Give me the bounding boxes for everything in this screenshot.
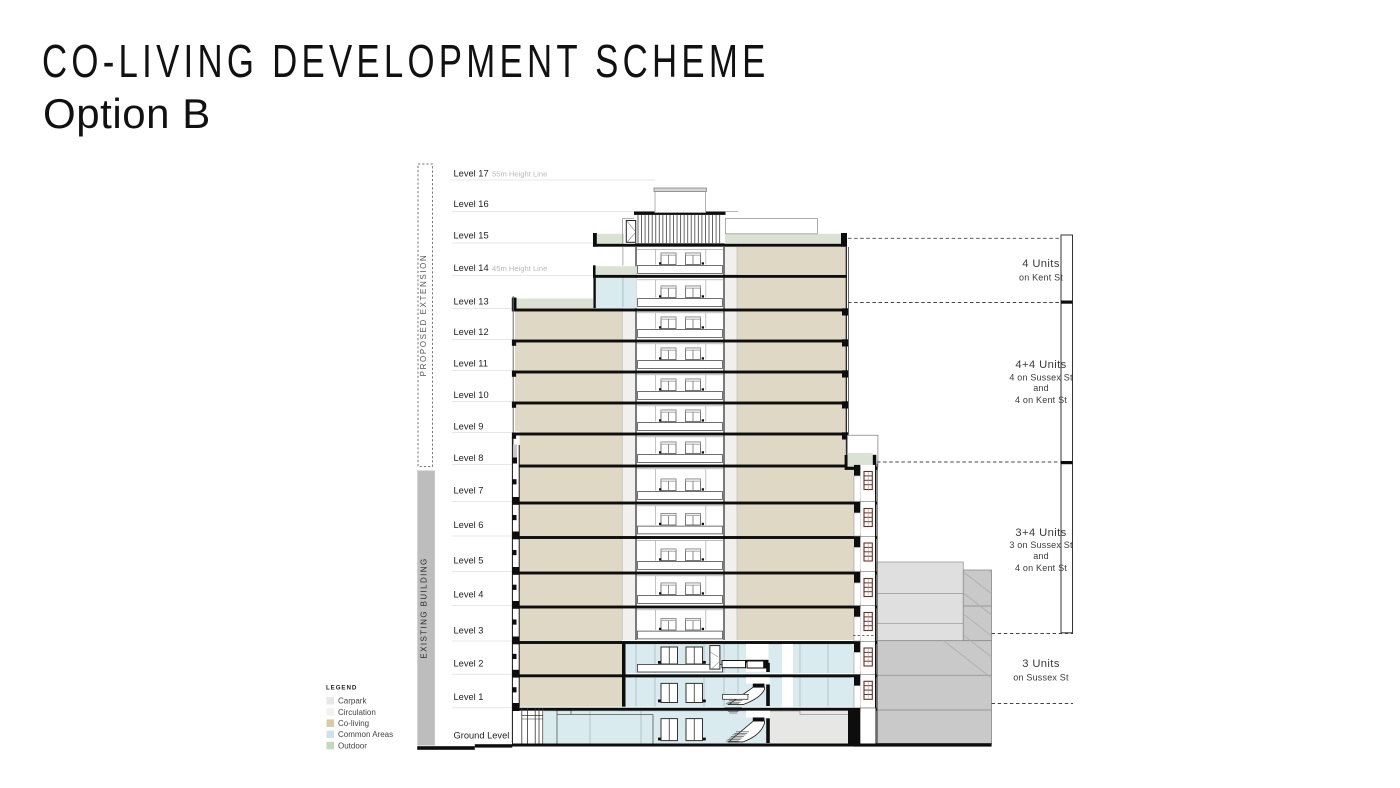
svg-text:4 on Sussex St: 4 on Sussex St — [1009, 373, 1073, 383]
svg-text:3+4 Units: 3+4 Units — [1015, 527, 1066, 539]
svg-text:Level 7: Level 7 — [454, 485, 484, 495]
svg-text:Level 2: Level 2 — [454, 659, 484, 669]
svg-text:on Kent St: on Kent St — [1019, 273, 1063, 283]
svg-text:4 on Kent St: 4 on Kent St — [1015, 563, 1067, 573]
svg-text:45m Height Line: 45m Height Line — [492, 264, 547, 273]
svg-text:3 on Sussex St: 3 on Sussex St — [1009, 540, 1073, 550]
svg-text:4+4 Units: 4+4 Units — [1015, 359, 1066, 371]
svg-text:Level 5: Level 5 — [454, 555, 484, 565]
svg-text:Level 6: Level 6 — [454, 520, 484, 530]
svg-text:Common Areas: Common Areas — [338, 730, 393, 739]
svg-text:Level 12: Level 12 — [454, 327, 489, 337]
svg-text:Level 10: Level 10 — [454, 390, 489, 400]
svg-text:and: and — [1033, 551, 1049, 561]
svg-text:Level 9: Level 9 — [454, 422, 484, 432]
svg-text:Level 16: Level 16 — [454, 199, 489, 209]
svg-text:Level 17: Level 17 — [454, 168, 489, 178]
svg-text:Carpark: Carpark — [338, 697, 367, 706]
svg-text:Level 13: Level 13 — [454, 297, 489, 307]
svg-text:Co-living: Co-living — [338, 719, 369, 728]
svg-text:on Sussex St: on Sussex St — [1013, 673, 1069, 683]
svg-text:3 Units: 3 Units — [1022, 658, 1060, 670]
svg-text:Level 8: Level 8 — [454, 453, 484, 463]
svg-text:Level 4: Level 4 — [454, 590, 484, 600]
svg-text:Level 11: Level 11 — [454, 359, 488, 369]
svg-text:4 Units: 4 Units — [1022, 258, 1060, 270]
svg-text:PROPOSED EXTENSION: PROPOSED EXTENSION — [419, 254, 428, 377]
svg-text:Level 14: Level 14 — [454, 263, 489, 273]
svg-text:EXISTING BUILDING: EXISTING BUILDING — [419, 557, 428, 658]
svg-text:Outdoor: Outdoor — [338, 741, 367, 750]
svg-text:Level 3: Level 3 — [454, 625, 484, 635]
svg-text:LEGEND: LEGEND — [326, 685, 357, 692]
svg-text:4 on Kent St: 4 on Kent St — [1015, 395, 1067, 405]
svg-text:and: and — [1033, 383, 1049, 393]
svg-text:55m Height Line: 55m Height Line — [492, 169, 547, 178]
svg-text:Level 1: Level 1 — [454, 692, 484, 702]
svg-text:Level 15: Level 15 — [454, 231, 489, 241]
svg-text:Circulation: Circulation — [338, 708, 376, 717]
svg-text:Ground Level: Ground Level — [454, 730, 510, 740]
